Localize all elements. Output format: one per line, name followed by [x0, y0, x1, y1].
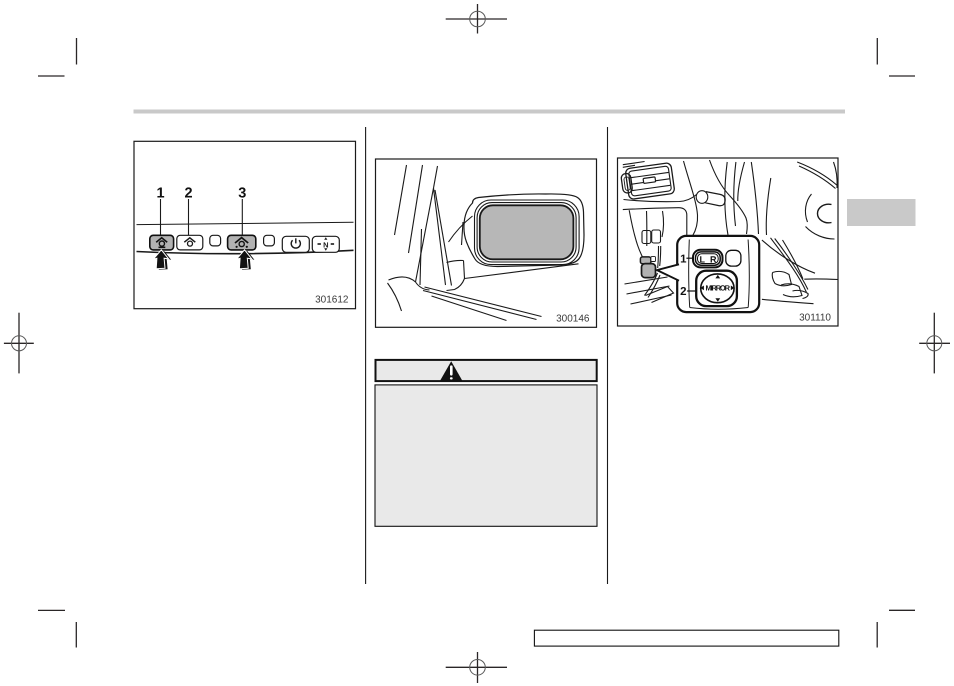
svg-text:2: 2: [680, 286, 686, 298]
svg-text:L: L: [700, 255, 706, 265]
svg-text:R: R: [710, 255, 717, 265]
svg-text:301110: 301110: [799, 313, 831, 324]
svg-text:N: N: [323, 240, 328, 249]
svg-text:MIRROR: MIRROR: [706, 284, 731, 293]
svg-text:1: 1: [680, 253, 687, 265]
svg-text:301612: 301612: [315, 295, 349, 306]
svg-text:300146: 300146: [556, 314, 590, 325]
